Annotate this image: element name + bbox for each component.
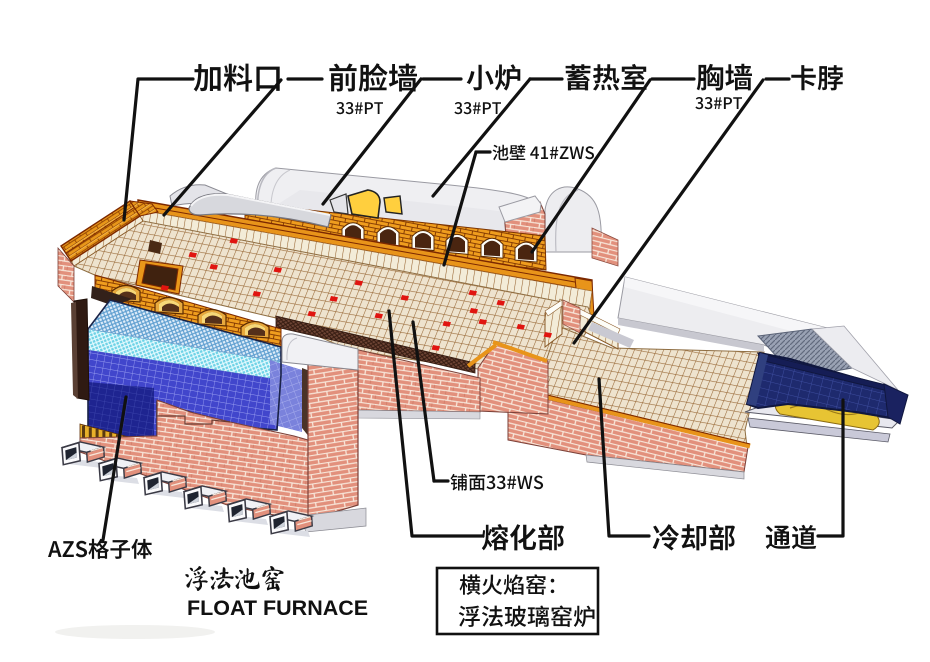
svg-text:FLOAT FURNACE: FLOAT FURNACE: [187, 596, 368, 620]
